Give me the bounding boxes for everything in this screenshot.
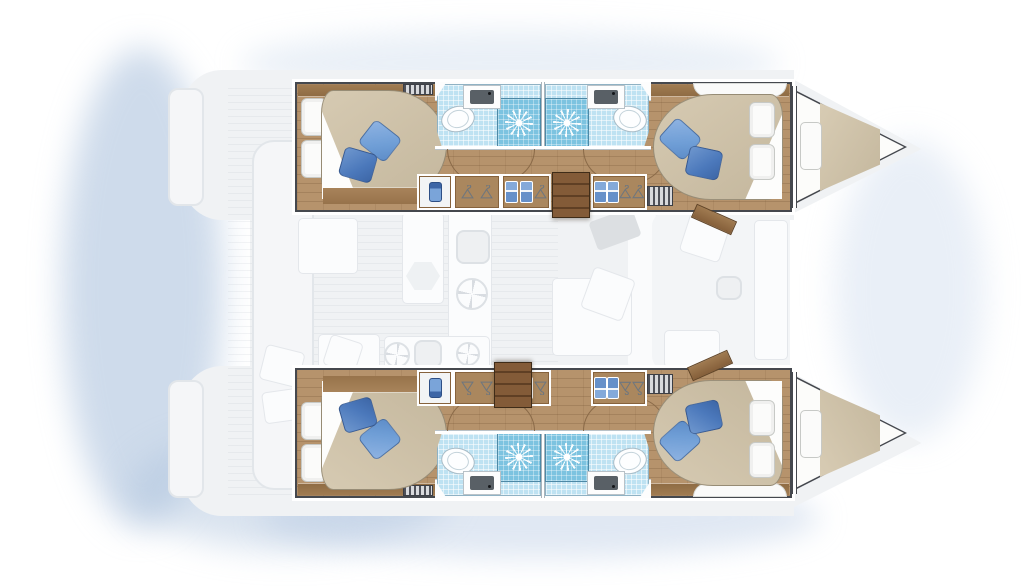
towel-icon bbox=[607, 181, 620, 203]
washbasin-icon bbox=[587, 85, 625, 109]
blue-item bbox=[429, 182, 442, 202]
bed-pillow bbox=[749, 144, 775, 180]
hanger-icon bbox=[534, 185, 547, 200]
towel-icon bbox=[594, 181, 607, 203]
bathroom-wall bbox=[435, 431, 651, 434]
shower-cubicle bbox=[497, 98, 541, 148]
shower-cubicle bbox=[545, 432, 589, 482]
bed-pillow bbox=[749, 400, 775, 436]
shower-cubicle bbox=[545, 98, 589, 148]
basin bbox=[594, 90, 618, 104]
cockpit-table bbox=[298, 218, 358, 274]
vent-grille-icon bbox=[647, 374, 673, 394]
bed-pillow bbox=[749, 102, 775, 138]
locker-blue-item bbox=[419, 372, 451, 404]
basin bbox=[594, 476, 618, 490]
bow-berth-mattress bbox=[820, 103, 880, 191]
hanger-icon bbox=[632, 185, 644, 200]
wardrobe-hangers bbox=[455, 372, 499, 404]
transom-port bbox=[168, 88, 204, 206]
washbasin-icon bbox=[463, 85, 501, 109]
hull-starboard bbox=[295, 368, 907, 498]
washbasin-icon bbox=[587, 471, 625, 495]
bathroom-divider-wall bbox=[541, 432, 545, 498]
shower-cubicle bbox=[497, 432, 541, 482]
hanger-icon bbox=[461, 381, 474, 396]
bed-pillow bbox=[800, 122, 822, 170]
hanger-icon bbox=[632, 381, 644, 396]
galley-sink bbox=[456, 230, 490, 264]
salon-sofa-back bbox=[754, 220, 788, 360]
bow-bulkhead bbox=[792, 86, 797, 208]
salon-side-table bbox=[716, 276, 742, 300]
bow-compartment bbox=[792, 82, 907, 212]
towel-icon bbox=[607, 377, 620, 399]
locker-blue-item bbox=[419, 176, 451, 208]
hanger-icon bbox=[534, 381, 547, 396]
bathroom-divider-wall bbox=[541, 82, 545, 148]
bow-berth-mattress bbox=[820, 389, 880, 477]
galley-sink-aft bbox=[414, 340, 442, 368]
wardrobe-mixed bbox=[593, 176, 645, 208]
hull-interior bbox=[295, 82, 907, 212]
hanger-icon bbox=[480, 381, 493, 396]
hanger-icon bbox=[619, 185, 631, 200]
transom-starboard bbox=[168, 380, 204, 498]
shower-rose-icon bbox=[553, 109, 581, 137]
basin bbox=[470, 90, 494, 104]
bow-bulkhead bbox=[792, 372, 797, 494]
hanger-icon bbox=[480, 185, 493, 200]
hanger-icon bbox=[619, 381, 631, 396]
basin bbox=[470, 476, 494, 490]
vent-grille-icon bbox=[647, 186, 673, 206]
hull-port bbox=[295, 82, 907, 212]
bed-pillow bbox=[800, 410, 822, 458]
hull-interior bbox=[295, 368, 907, 498]
wardrobe-towels bbox=[503, 176, 549, 208]
washbasin-icon bbox=[463, 471, 501, 495]
towel-icon bbox=[505, 181, 518, 203]
companionway-steps bbox=[494, 362, 532, 408]
blue-item bbox=[429, 378, 442, 398]
wardrobe-hangers bbox=[455, 176, 499, 208]
catamaran-floorplan bbox=[0, 0, 1024, 586]
bed-pillow bbox=[749, 442, 775, 478]
bow-compartment bbox=[792, 368, 907, 498]
galley-burner-aft2 bbox=[456, 342, 480, 366]
shower-rose-icon bbox=[505, 109, 533, 137]
galley-burner bbox=[456, 278, 488, 310]
towel-icon bbox=[520, 181, 533, 203]
shower-rose-icon bbox=[505, 443, 533, 471]
companionway-steps bbox=[552, 172, 590, 218]
galley-counter-left bbox=[402, 212, 444, 304]
towel-icon bbox=[594, 377, 607, 399]
wardrobe-mixed bbox=[593, 372, 645, 404]
hanger-icon bbox=[461, 185, 474, 200]
galley-burner-aft bbox=[384, 342, 410, 368]
shower-rose-icon bbox=[553, 443, 581, 471]
